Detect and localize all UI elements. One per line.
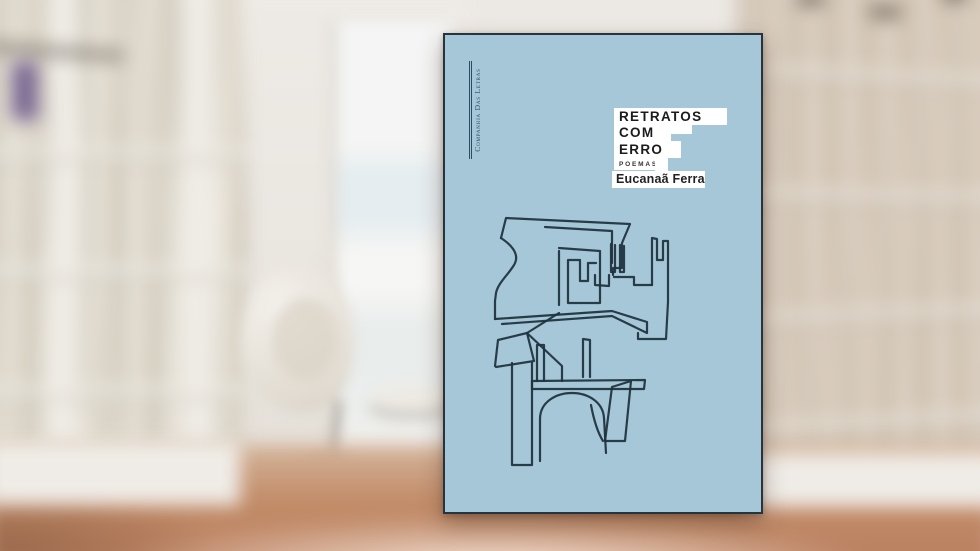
- author-name: Eucanaã Ferraz: [612, 171, 705, 188]
- title-line-2: COM: [614, 125, 671, 141]
- shelf-pillar: [50, 0, 80, 480]
- shelf-board: [728, 65, 980, 87]
- baseboard-left: [0, 440, 240, 505]
- shelf-board: [0, 268, 245, 276]
- armchair-seat: [272, 298, 338, 382]
- armchair: [242, 262, 367, 472]
- dark-book-spine: [943, 0, 967, 1]
- cover-line-drawing: [464, 205, 720, 485]
- scene: Companhia Das Letras RETRATOS COM ERRO P…: [0, 0, 980, 551]
- baseboard-right: [740, 452, 980, 507]
- shelf-pillar: [180, 0, 215, 480]
- book-cover: Companhia Das Letras RETRATOS COM ERRO P…: [443, 33, 763, 514]
- shelf-board: [0, 150, 245, 158]
- shelf-board: [728, 305, 980, 325]
- bookshelf-right: [738, 0, 980, 500]
- publisher-logo: Companhia Das Letras: [469, 61, 483, 159]
- shelf-board: [728, 189, 980, 203]
- title-step-block: [671, 125, 692, 134]
- purple-book-spine: [12, 62, 38, 120]
- title-line-1: RETRATOS: [614, 108, 727, 125]
- title-line-3: ERRO: [614, 141, 681, 158]
- dark-book-spine: [870, 6, 900, 18]
- genre-step-block: [655, 157, 668, 171]
- shelf-board: [0, 388, 245, 396]
- shelf-board: [728, 409, 980, 436]
- genre-label: POEMAS: [614, 158, 655, 170]
- dark-book-spine: [798, 0, 824, 5]
